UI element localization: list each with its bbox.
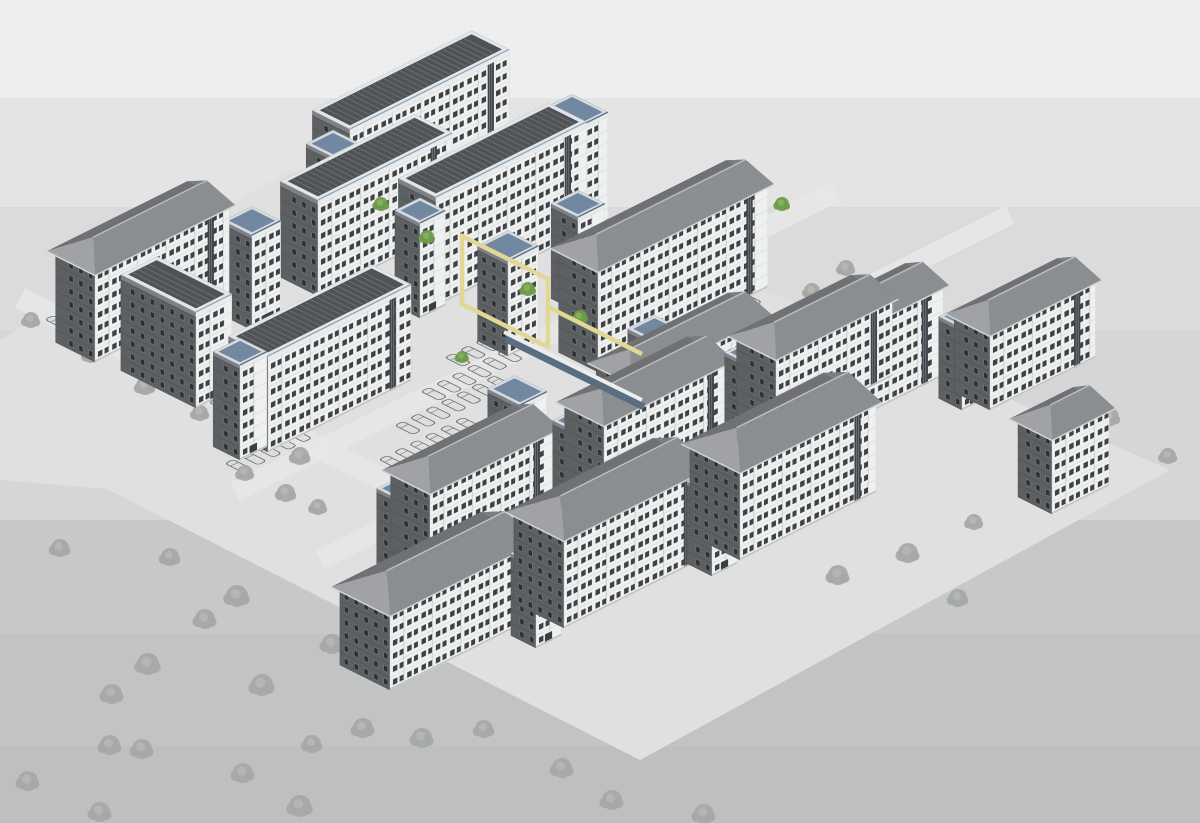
facade-southwest bbox=[280, 181, 318, 296]
model-viewport[interactable] bbox=[0, 0, 1200, 823]
ground-band bbox=[0, 746, 1200, 823]
building-At2 bbox=[213, 338, 267, 460]
screenshot-root bbox=[0, 0, 1200, 823]
facade-southeast bbox=[240, 352, 267, 460]
facade-southwest bbox=[478, 246, 508, 356]
facade-southwest bbox=[213, 352, 240, 460]
facade-southeast bbox=[420, 210, 445, 318]
ground-band bbox=[0, 0, 1200, 98]
